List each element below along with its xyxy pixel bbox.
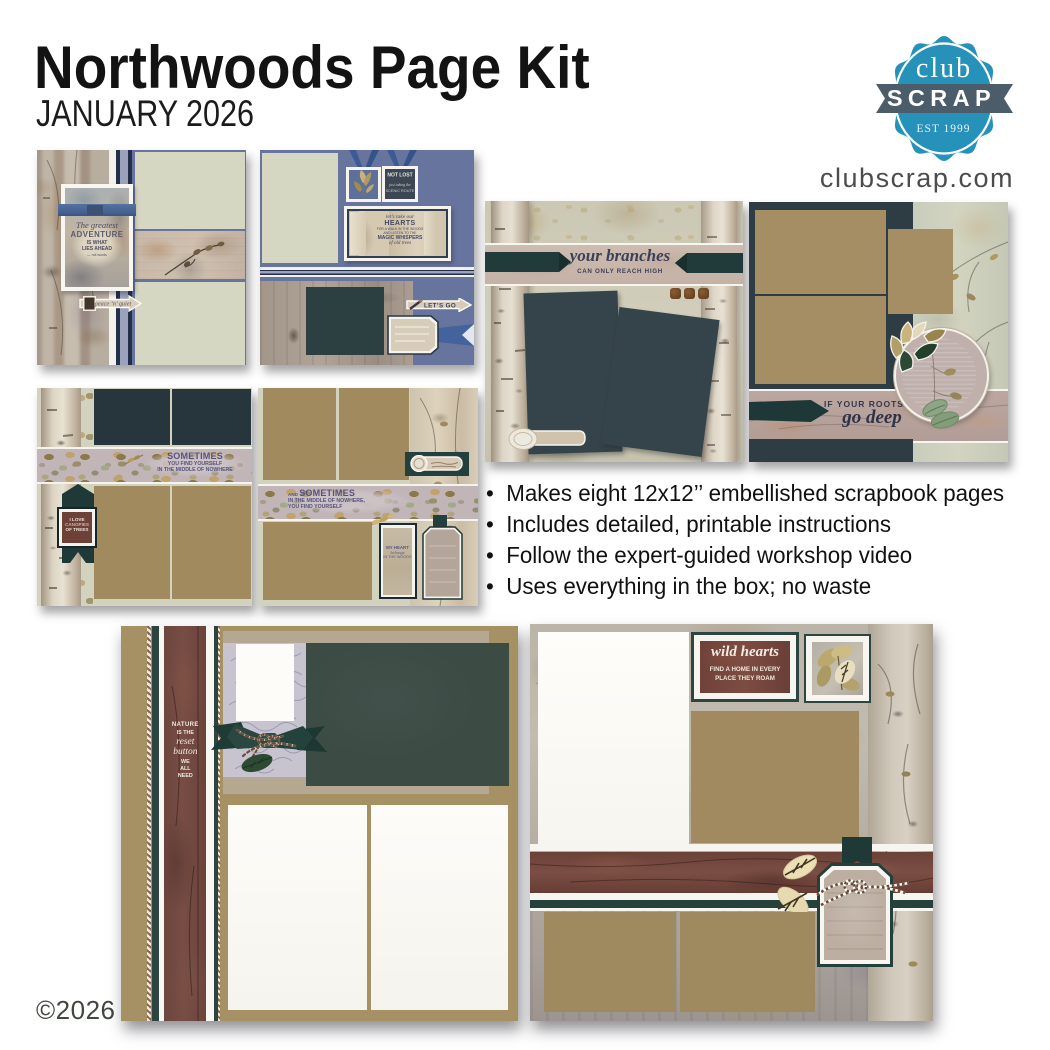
svg-text:SCRAP: SCRAP: [887, 85, 996, 111]
svg-text:NOT LOST: NOT LOST: [387, 173, 412, 179]
svg-text:LET’S GO: LET’S GO: [424, 303, 456, 310]
svg-text:SCENIC ROUTE: SCENIC ROUTE: [386, 189, 415, 193]
svg-text:just taking the: just taking the: [388, 183, 411, 187]
svg-text:EST 1999: EST 1999: [916, 123, 970, 135]
svg-text:club: club: [916, 53, 972, 84]
svg-text:peace ’n’ quiet: peace ’n’ quiet: [94, 301, 132, 308]
